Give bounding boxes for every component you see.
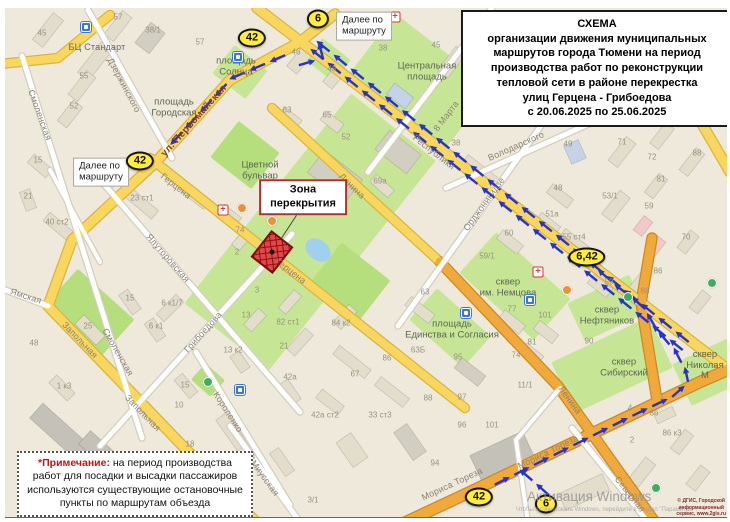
- windows-activation-subtext: Чтобы активировать Windows, перейдите в …: [516, 507, 697, 513]
- page-margin-bottom: [0, 517, 730, 522]
- page-margin-top: [0, 0, 730, 8]
- note-label: *Примечание:: [38, 457, 110, 469]
- map-copyright: © ДГИС, Городской информационный сервис,…: [676, 498, 726, 517]
- note-box: *Примечание: на период производства рабо…: [17, 451, 253, 517]
- detour-scheme-map: ДзержинскогоСмоленскаяСмоленскаяул. Перв…: [0, 0, 730, 522]
- windows-activation-watermark: Активация Windows: [527, 489, 651, 504]
- page-margin-left: [0, 0, 5, 522]
- scheme-title: СХЕМА организации движения муниципальных…: [461, 10, 730, 127]
- closure-zone-label: Зона перекрытия: [259, 179, 347, 215]
